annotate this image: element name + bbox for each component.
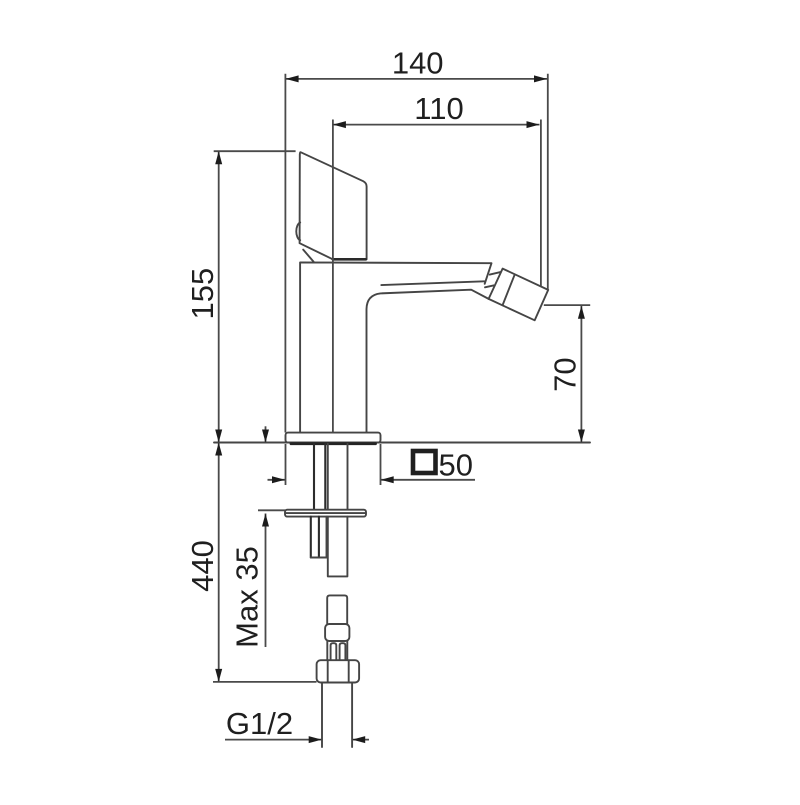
- svg-text:440: 440: [185, 540, 220, 592]
- svg-text:70: 70: [547, 357, 582, 391]
- svg-text:G1/2: G1/2: [226, 706, 293, 741]
- svg-text:50: 50: [439, 448, 473, 483]
- svg-text:Max 35: Max 35: [229, 546, 264, 648]
- svg-text:140: 140: [392, 46, 444, 81]
- svg-text:110: 110: [414, 91, 463, 126]
- svg-text:155: 155: [185, 268, 220, 320]
